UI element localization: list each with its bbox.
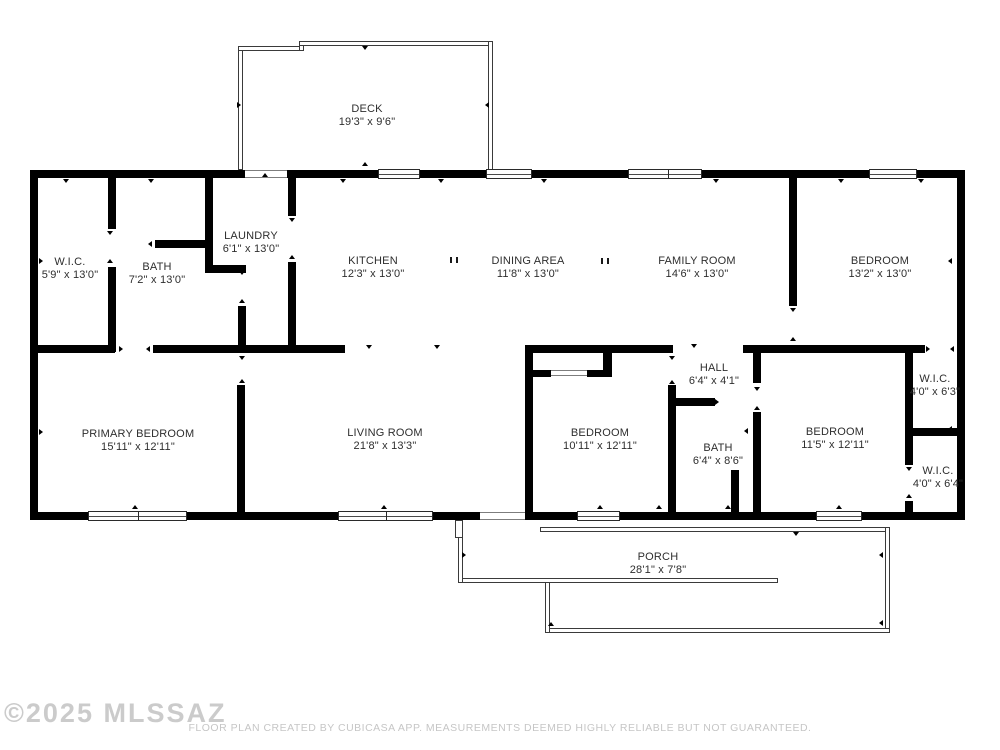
porch-edge: [885, 527, 890, 633]
dimension-tick: [744, 428, 748, 434]
door-tick: [790, 337, 796, 341]
dimension-tick: [39, 429, 43, 435]
room-label-bedroom-se: BEDROOM 11'5" x 12'11": [801, 426, 869, 452]
dimension-tick: [148, 179, 154, 183]
room-name: BATH: [693, 442, 743, 455]
room-name: PORCH: [630, 551, 687, 564]
door-tick: [239, 271, 245, 275]
dimension-tick: [548, 622, 554, 626]
dimension-tick: [656, 505, 662, 509]
porch-edge: [545, 628, 890, 633]
door-tick: [906, 467, 912, 471]
room-dims: 11'5" x 12'11": [801, 439, 869, 452]
door-tick: [239, 379, 245, 383]
porch-edge: [455, 520, 463, 538]
dimension-tick: [362, 46, 368, 50]
room-dims: 6'4" x 8'6": [693, 455, 743, 468]
dimension-tick: [237, 102, 241, 108]
dimension-tick: [63, 179, 69, 183]
door-tick: [148, 241, 152, 247]
interior-wall: [668, 398, 715, 406]
room-label-wic-left: W.I.C. 5'9" x 13'0": [42, 256, 99, 282]
door-tick: [669, 380, 675, 384]
dimension-tick: [485, 102, 489, 108]
door-tick: [790, 308, 796, 312]
room-name: DINING AREA: [491, 255, 564, 268]
interior-wall: [905, 345, 925, 353]
room-name: W.I.C.: [910, 373, 960, 386]
dimension-tick: [918, 179, 924, 183]
window: [338, 511, 433, 521]
interior-wall: [155, 240, 213, 248]
porch-edge: [540, 527, 890, 532]
dimension-tick: [725, 505, 731, 509]
dimension-tick: [434, 345, 440, 349]
window: [628, 169, 702, 179]
window: [378, 169, 420, 179]
window: [816, 511, 862, 521]
closet-wall: [533, 370, 551, 377]
dimension-tick: [793, 532, 799, 536]
dimension-tick: [838, 179, 844, 183]
area-separator: [450, 257, 458, 263]
dimension-tick: [132, 505, 138, 509]
door-tick: [715, 399, 719, 405]
room-name: BEDROOM: [849, 255, 912, 268]
room-dims: 14'6" x 13'0": [658, 268, 736, 281]
deck-wall: [238, 46, 243, 170]
room-label-living: LIVING ROOM 21'8" x 13'3": [347, 427, 423, 453]
interior-wall: [288, 178, 296, 216]
room-dims: 6'1" x 13'0": [223, 243, 280, 256]
porch-edge: [458, 578, 778, 583]
dimension-tick: [879, 620, 883, 626]
dimension-tick: [362, 162, 368, 166]
dimension-tick: [836, 505, 842, 509]
room-dims: 4'0" x 6'3": [910, 386, 960, 399]
dimension-tick: [381, 505, 387, 509]
room-label-dining: DINING AREA 11'8" x 13'0": [491, 255, 564, 281]
door-tick: [691, 344, 697, 348]
room-label-primary: PRIMARY BEDROOM 15'11" x 12'11": [82, 428, 195, 454]
door-tick: [754, 387, 760, 391]
dimension-tick: [340, 179, 346, 183]
room-name: FAMILY ROOM: [658, 255, 736, 268]
interior-wall: [905, 436, 913, 465]
porch-sliding-door: [480, 512, 525, 520]
room-name: W.I.C.: [42, 256, 99, 269]
disclaimer-text: FLOOR PLAN CREATED BY CUBICASA APP. MEAS…: [189, 722, 812, 734]
window: [869, 169, 917, 179]
room-dims: 5'9" x 13'0": [42, 269, 99, 282]
interior-wall: [743, 345, 905, 353]
room-label-wic-lower: W.I.C. 4'0" x 6'4": [913, 465, 963, 491]
interior-wall: [108, 178, 116, 229]
room-name: BEDROOM: [563, 427, 637, 440]
room-name: LAUNDRY: [223, 230, 280, 243]
dimension-tick: [541, 179, 547, 183]
interior-wall: [237, 385, 245, 512]
room-name: HALL: [689, 362, 739, 375]
room-label-bath-left: BATH 7'2" x 13'0": [129, 261, 186, 287]
closet-wall: [587, 370, 612, 377]
door-tick: [906, 494, 912, 498]
window: [88, 511, 187, 521]
room-label-hall: HALL 6'4" x 4'1": [689, 362, 739, 388]
interior-wall: [789, 178, 797, 306]
room-name: PRIMARY BEDROOM: [82, 428, 195, 441]
door-tick: [926, 346, 930, 352]
dimension-tick: [879, 552, 883, 558]
room-dims: 4'0" x 6'4": [913, 478, 963, 491]
interior-wall: [525, 345, 673, 353]
interior-wall: [731, 470, 739, 512]
porch-edge: [458, 536, 463, 583]
interior-wall: [753, 353, 761, 383]
interior-wall: [153, 345, 345, 353]
dimension-tick: [948, 426, 952, 432]
room-dims: 13'2" x 13'0": [849, 268, 912, 281]
interior-wall: [205, 178, 213, 267]
window: [486, 169, 532, 179]
room-label-deck: DECK 19'3" x 9'6": [339, 103, 396, 129]
dimension-tick: [462, 552, 466, 558]
room-name: BATH: [129, 261, 186, 274]
deck-wall: [238, 46, 302, 51]
room-dims: 12'3" x 13'0": [342, 268, 405, 281]
room-name: LIVING ROOM: [347, 427, 423, 440]
door-tick: [239, 356, 245, 360]
room-label-family: FAMILY ROOM 14'6" x 13'0": [658, 255, 736, 281]
door-tick: [289, 218, 295, 222]
room-dims: 15'11" x 12'11": [82, 441, 195, 454]
interior-wall: [30, 345, 115, 353]
room-name: W.I.C.: [913, 465, 963, 478]
room-dims: 21'8" x 13'3": [347, 440, 423, 453]
door-tick: [107, 259, 113, 263]
room-dims: 6'4" x 4'1": [689, 375, 739, 388]
room-dims: 10'11" x 12'11": [563, 440, 637, 453]
room-label-bedroom-mid: BEDROOM 10'11" x 12'11": [563, 427, 637, 453]
floor-plan: DECK 19'3" x 9'6" W.I.C. 5'9" x 13'0" BA…: [0, 0, 1000, 750]
room-label-laundry: LAUNDRY 6'1" x 13'0": [223, 230, 280, 256]
door-tick: [119, 346, 123, 352]
dimension-tick: [366, 345, 372, 349]
door-tick: [239, 299, 245, 303]
door-tick: [669, 356, 675, 360]
door-tick: [107, 231, 113, 235]
room-dims: 7'2" x 13'0": [129, 274, 186, 287]
deck-wall: [299, 41, 493, 46]
door-tick: [754, 406, 760, 410]
window: [577, 511, 620, 521]
room-label-porch: PORCH 28'1" x 7'8": [630, 551, 687, 577]
interior-wall: [753, 412, 761, 512]
door-tick: [950, 346, 954, 352]
room-label-wic-upper: W.I.C. 4'0" x 6'3": [910, 373, 960, 399]
door-tick: [289, 255, 295, 259]
room-label-kitchen: KITCHEN 12'3" x 13'0": [342, 255, 405, 281]
dimension-tick: [438, 179, 444, 183]
room-name: BEDROOM: [801, 426, 869, 439]
area-separator: [601, 258, 609, 264]
dimension-tick: [713, 179, 719, 183]
dimension-tick: [948, 258, 952, 264]
dimension-tick: [671, 432, 675, 438]
interior-wall: [108, 267, 116, 352]
interior-wall: [905, 501, 913, 512]
interior-wall: [288, 262, 296, 352]
room-name: DECK: [339, 103, 396, 116]
room-dims: 28'1" x 7'8": [630, 564, 687, 577]
closet-sliding-door: [551, 370, 587, 376]
room-dims: 11'8" x 13'0": [491, 268, 564, 281]
room-label-bedroom-ne: BEDROOM 13'2" x 13'0": [849, 255, 912, 281]
door-tick: [146, 346, 150, 352]
interior-wall: [525, 353, 533, 512]
dimension-tick: [262, 173, 268, 177]
room-dims: 19'3" x 9'6": [339, 116, 396, 129]
room-name: KITCHEN: [342, 255, 405, 268]
room-label-bath-mid: BATH 6'4" x 8'6": [693, 442, 743, 468]
interior-wall: [905, 428, 965, 436]
dimension-tick: [597, 505, 603, 509]
